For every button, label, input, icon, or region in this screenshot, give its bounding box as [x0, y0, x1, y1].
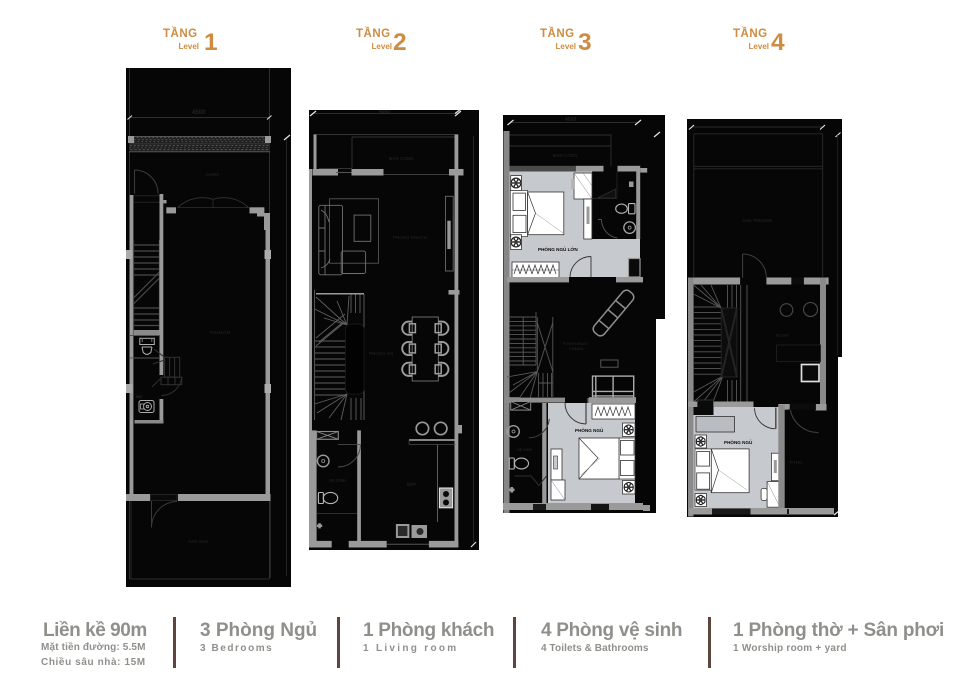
svg-text:4500: 4500: [192, 110, 206, 116]
svg-text:SAN THUONG: SAN THUONG: [742, 218, 773, 223]
svg-text:VỆ SINH: VỆ SINH: [517, 447, 532, 452]
svg-text:P.KHACH: P.KHACH: [210, 330, 230, 335]
svg-text:4500: 4500: [379, 110, 390, 115]
svg-text:WC: WC: [136, 394, 143, 399]
svg-text:PHÒNG NGỦ LỚN: PHÒNG NGỦ LỚN: [538, 245, 578, 252]
svg-text:PHONG AN: PHONG AN: [369, 351, 393, 356]
svg-text:BAN CONG: BAN CONG: [553, 153, 578, 158]
svg-text:PHÒNG NGỦ: PHÒNG NGỦ: [724, 438, 753, 445]
svg-text:PHÒNG NGỦ: PHÒNG NGỦ: [575, 426, 604, 433]
svg-text:BEP: BEP: [407, 482, 416, 487]
svg-text:VE SINH: VE SINH: [329, 478, 346, 483]
svg-text:GARA: GARA: [206, 172, 220, 177]
svg-text:P.GIAT: P.GIAT: [776, 333, 790, 338]
svg-text:P.THO: P.THO: [790, 460, 803, 465]
svg-text:PHONG KHACH: PHONG KHACH: [393, 235, 427, 240]
svg-text:BAN CONG: BAN CONG: [389, 156, 414, 161]
svg-text:SAN SAU: SAN SAU: [188, 539, 208, 544]
svg-text:CHUNG: CHUNG: [569, 346, 584, 351]
svg-text:4500: 4500: [565, 117, 576, 123]
